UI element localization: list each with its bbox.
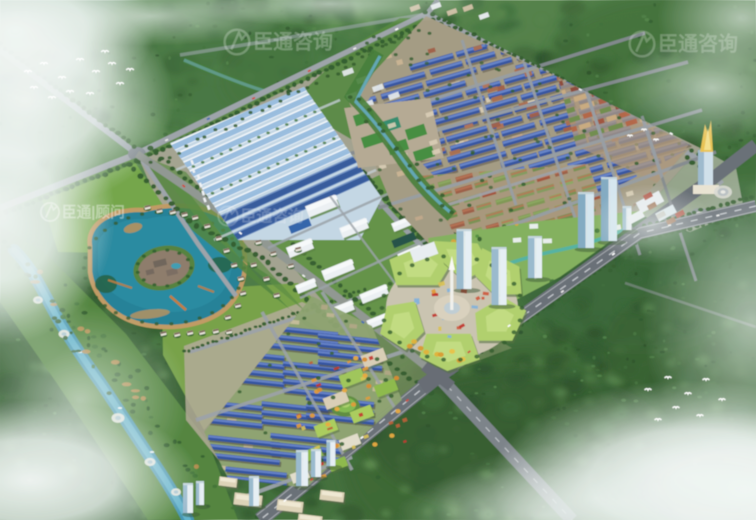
svg-text:臣通咨询: 臣通咨询 <box>241 206 304 225</box>
svg-text:臣通|顾问: 臣通|顾问 <box>62 203 125 221</box>
svg-text:臣通咨询: 臣通咨询 <box>253 30 333 54</box>
svg-text:臣通咨询: 臣通咨询 <box>658 32 738 56</box>
